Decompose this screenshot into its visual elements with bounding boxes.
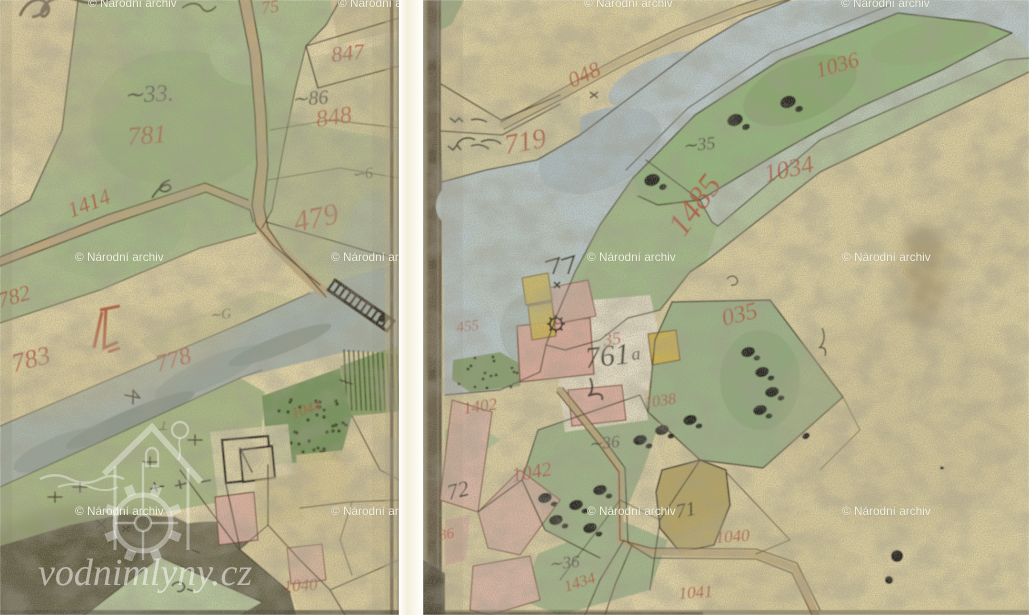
svg-text:© Národní archiv: © Národní archiv (88, 0, 177, 10)
svg-text:© Národní archiv: © Národní archiv (587, 250, 676, 264)
svg-text:© Národní archiv: © Národní archiv (842, 504, 931, 518)
svg-text:© Národní archiv: © Národní archiv (841, 0, 930, 10)
svg-text:© Národní archiv: © Národní archiv (842, 250, 931, 264)
svg-text:© Národní archiv: © Národní archiv (584, 0, 673, 10)
svg-text:© Národní archiv: © Národní archiv (75, 250, 164, 264)
svg-text:© Národní archiv: © Národní archiv (587, 504, 676, 518)
svg-text:vodnimlyny.cz: vodnimlyny.cz (38, 552, 252, 594)
